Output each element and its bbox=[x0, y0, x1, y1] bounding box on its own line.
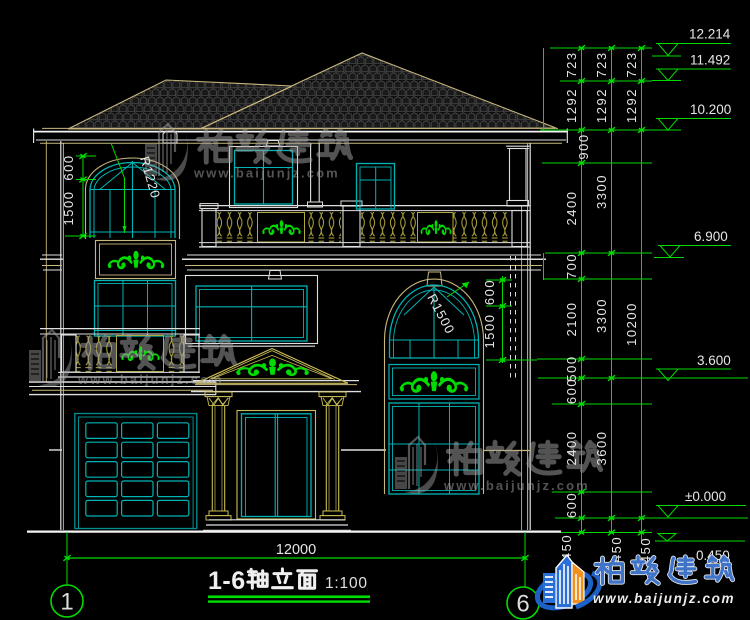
svg-text:1292: 1292 bbox=[594, 88, 609, 123]
svg-text:500: 500 bbox=[564, 355, 579, 381]
svg-text:3.600: 3.600 bbox=[697, 353, 731, 368]
svg-text:10.200: 10.200 bbox=[690, 102, 731, 117]
svg-text:6.900: 6.900 bbox=[694, 229, 728, 244]
svg-text:www.baijunjz.com: www.baijunjz.com bbox=[193, 166, 340, 181]
svg-text:1292: 1292 bbox=[624, 88, 639, 123]
svg-text:12.214: 12.214 bbox=[689, 27, 731, 42]
svg-text:2400: 2400 bbox=[564, 431, 579, 466]
svg-text:700: 700 bbox=[564, 253, 579, 279]
svg-text:600: 600 bbox=[61, 154, 76, 180]
svg-text:723: 723 bbox=[624, 51, 639, 77]
svg-text:1500: 1500 bbox=[61, 191, 76, 226]
svg-text:6: 6 bbox=[516, 591, 529, 618]
svg-text:www.baijunjz.com: www.baijunjz.com bbox=[593, 591, 735, 606]
svg-text:723: 723 bbox=[594, 51, 609, 77]
svg-text:www.baijunjz.com: www.baijunjz.com bbox=[77, 372, 224, 387]
svg-text:±0.000: ±0.000 bbox=[685, 489, 726, 504]
svg-text:723: 723 bbox=[564, 51, 579, 77]
svg-text:3600: 3600 bbox=[594, 431, 609, 466]
svg-text:2100: 2100 bbox=[564, 302, 579, 337]
svg-text:3300: 3300 bbox=[594, 174, 609, 209]
svg-text:2400: 2400 bbox=[564, 191, 579, 226]
svg-text:600: 600 bbox=[482, 279, 497, 305]
svg-text:10200: 10200 bbox=[624, 302, 639, 346]
svg-text:1500: 1500 bbox=[482, 314, 497, 349]
svg-text:12000: 12000 bbox=[276, 542, 316, 558]
svg-text:3300: 3300 bbox=[594, 298, 609, 333]
svg-text:1:100: 1:100 bbox=[325, 575, 368, 592]
svg-text:1-6: 1-6 bbox=[208, 567, 246, 595]
svg-text:900: 900 bbox=[576, 133, 591, 159]
svg-text:1292: 1292 bbox=[564, 88, 579, 123]
svg-text:600: 600 bbox=[564, 378, 579, 404]
svg-text:www.baijunjz.com: www.baijunjz.com bbox=[443, 478, 590, 493]
svg-text:600: 600 bbox=[564, 492, 579, 518]
svg-text:11.492: 11.492 bbox=[690, 53, 730, 68]
svg-text:1: 1 bbox=[60, 589, 73, 616]
